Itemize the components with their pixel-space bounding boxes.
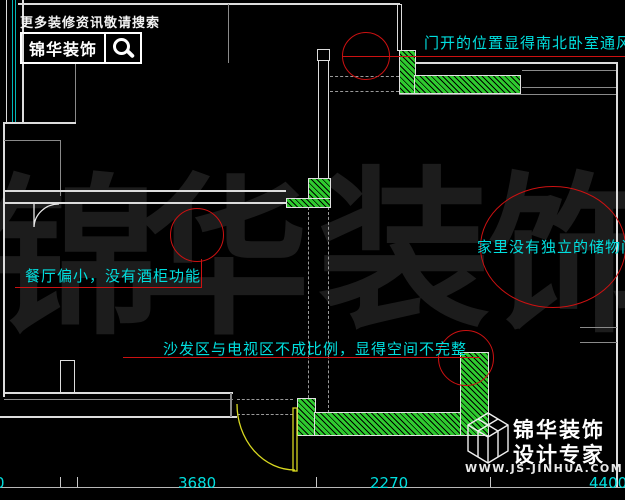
cad-floorplan-canvas: 锦 华 装 饰 bbox=[0, 0, 625, 500]
logo-cube-icon bbox=[468, 413, 508, 463]
logo-website: WWW.JS-JINHUA.COM bbox=[465, 462, 623, 475]
